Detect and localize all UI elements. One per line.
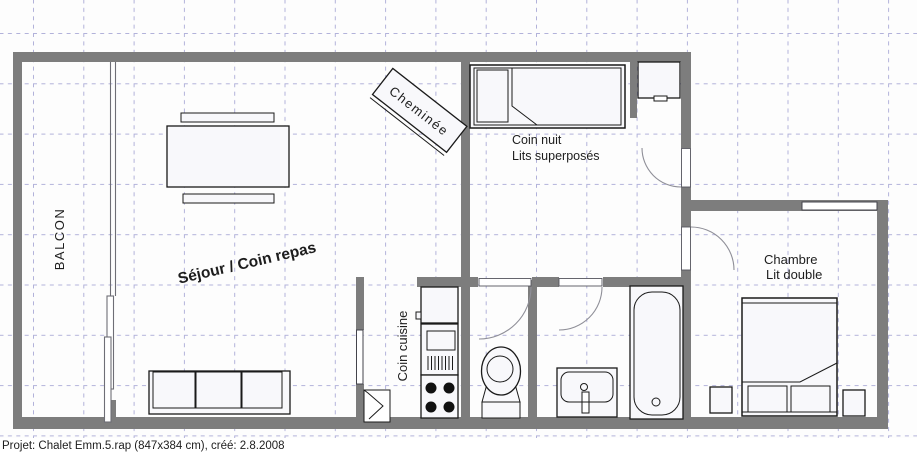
bath-door-leaf[interactable] bbox=[559, 279, 602, 287]
toilet-tank bbox=[482, 402, 520, 418]
kitchen-unit[interactable] bbox=[416, 287, 458, 418]
stove[interactable] bbox=[421, 375, 458, 418]
bench-top[interactable] bbox=[181, 113, 274, 122]
wall-closet-stub bbox=[630, 62, 637, 118]
wall-right-upper bbox=[681, 62, 691, 148]
wall-bath-bedroom-upper bbox=[681, 211, 691, 227]
sofa-seat-3 bbox=[242, 372, 282, 408]
bedroom-label-2: Lit double bbox=[766, 267, 822, 282]
burner bbox=[426, 402, 437, 413]
washbasin[interactable] bbox=[557, 368, 617, 417]
fridge-handle bbox=[416, 312, 421, 319]
nightstand-left[interactable] bbox=[710, 387, 732, 413]
wall-interior-vertical bbox=[461, 62, 470, 417]
bench-bottom[interactable] bbox=[183, 194, 274, 203]
sofa-seat-1 bbox=[153, 372, 195, 408]
status-bar-text: Projet: Chalet Emm.5.rap (847x384 cm), c… bbox=[2, 440, 285, 452]
burner bbox=[426, 383, 437, 394]
sleeping-corner-label-1: Coin nuit bbox=[512, 133, 562, 147]
kitchen-label: Coin cuisine bbox=[395, 311, 410, 382]
bedroom-label-1: Chambre bbox=[764, 252, 817, 267]
oven-display bbox=[427, 331, 455, 350]
wall-kitchen-left-upper bbox=[356, 277, 364, 330]
bunk-bed[interactable] bbox=[470, 65, 625, 128]
heater-box[interactable] bbox=[364, 390, 390, 422]
nightstand-right[interactable] bbox=[843, 390, 865, 416]
bathtub-frame[interactable] bbox=[630, 286, 683, 419]
cabinet-body[interactable] bbox=[638, 62, 680, 98]
wall-bottom bbox=[13, 417, 888, 429]
sliding-door-panel-2[interactable] bbox=[105, 337, 112, 422]
wall-top bbox=[13, 52, 691, 62]
wc-door-leaf[interactable] bbox=[479, 279, 531, 287]
bedroom-window[interactable] bbox=[802, 202, 877, 210]
burner bbox=[444, 383, 455, 394]
closet-door-leaf[interactable] bbox=[682, 149, 691, 188]
sleeping-corner-label-2: Lits superposés bbox=[512, 149, 600, 163]
cabinet-notch bbox=[654, 96, 667, 101]
kitchen-window[interactable] bbox=[357, 330, 364, 384]
fridge[interactable] bbox=[421, 287, 458, 323]
wall-bedroom-right bbox=[877, 200, 888, 429]
bed-pillow-right bbox=[791, 386, 830, 412]
wall-kitchen-top bbox=[417, 277, 478, 287]
burner bbox=[444, 402, 455, 413]
bed-pillow-left bbox=[748, 386, 787, 412]
wardrobe-cabinet[interactable] bbox=[638, 62, 680, 101]
sofa-seat-2 bbox=[196, 372, 241, 408]
sofa[interactable] bbox=[149, 371, 290, 414]
floor-plan-canvas: Cheminée bbox=[0, 0, 917, 454]
wall-left bbox=[13, 52, 22, 429]
heater-symbol[interactable] bbox=[364, 390, 390, 422]
balcony-label: BALCON bbox=[52, 208, 67, 270]
bunk-bed-pillow bbox=[477, 70, 508, 122]
dining-table[interactable] bbox=[167, 126, 289, 187]
toilet[interactable] bbox=[482, 347, 521, 418]
bedroom-door-leaf[interactable] bbox=[682, 227, 691, 270]
wall-kitchen-left-lower bbox=[356, 384, 364, 417]
bathtub[interactable] bbox=[630, 286, 683, 419]
